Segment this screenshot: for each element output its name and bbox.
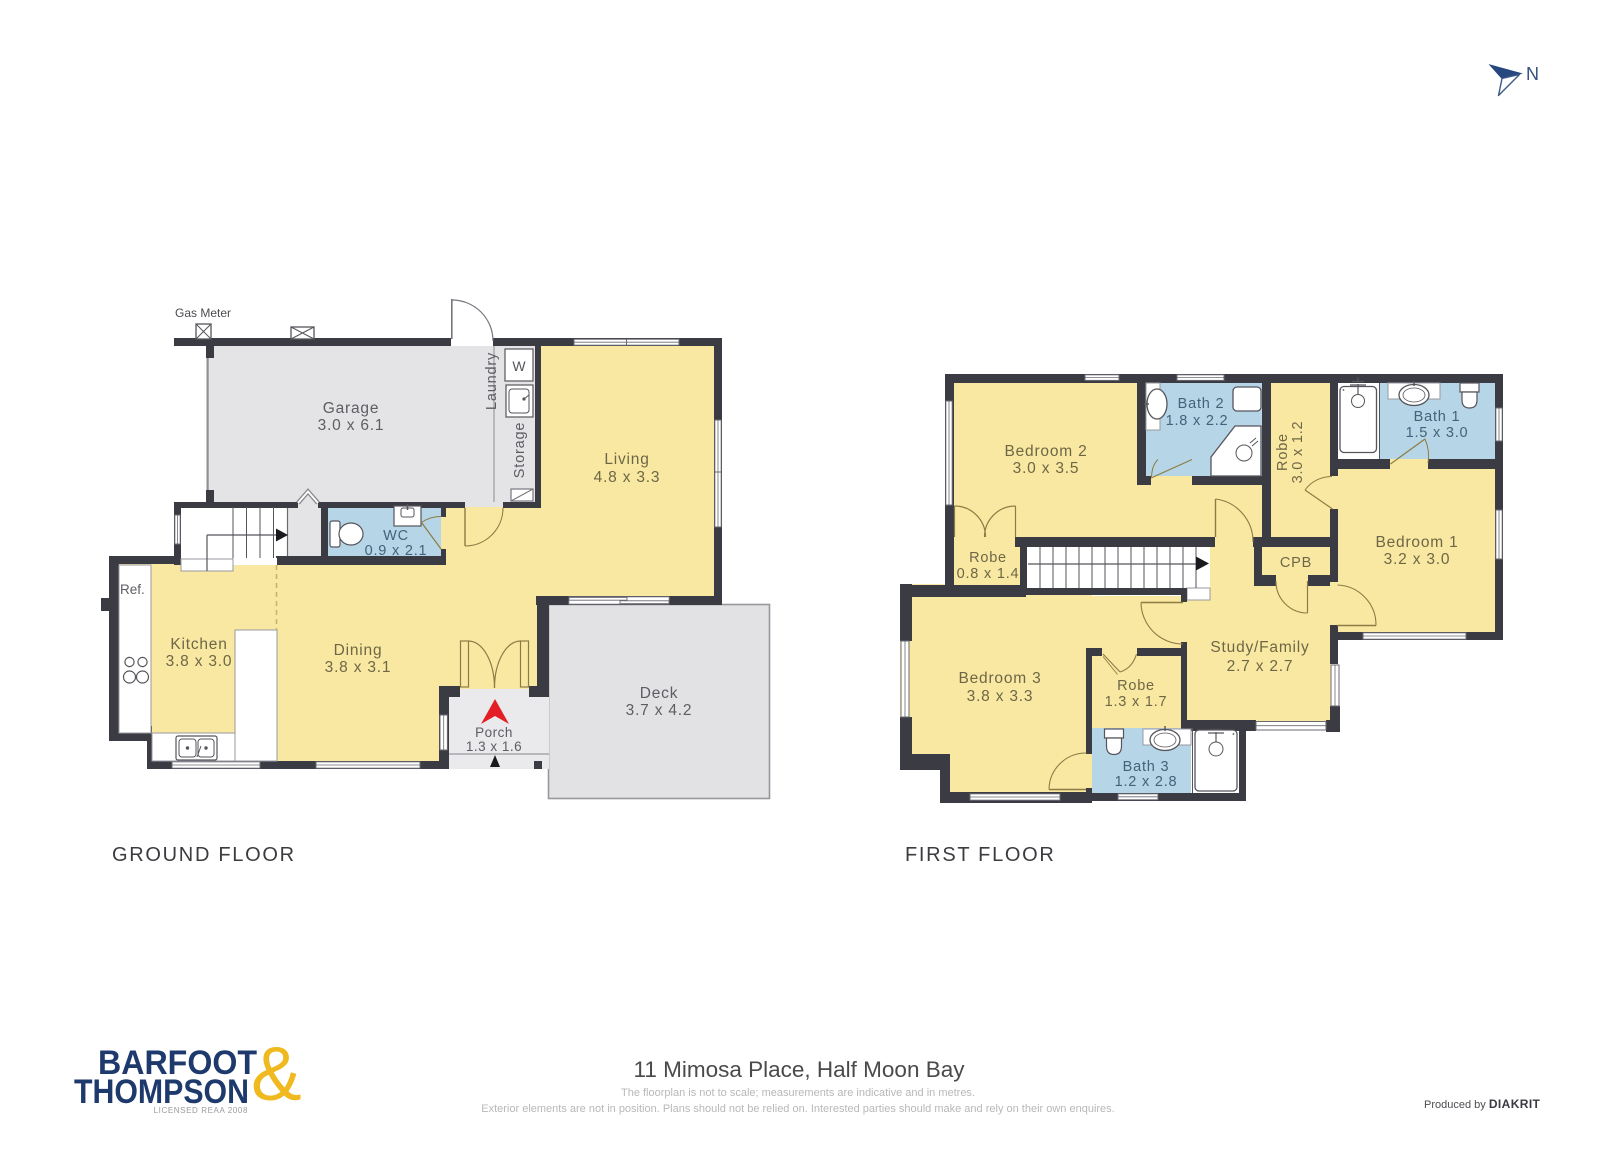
svg-text:1.3 x 1.7: 1.3 x 1.7	[1105, 694, 1168, 710]
svg-text:3.7 x 4.2: 3.7 x 4.2	[626, 702, 693, 719]
svg-text:Porch: Porch	[475, 725, 513, 740]
svg-text:3.8 x 3.0: 3.8 x 3.0	[166, 653, 233, 670]
svg-text:Kitchen: Kitchen	[170, 636, 227, 653]
svg-text:1.5 x 3.0: 1.5 x 3.0	[1406, 425, 1469, 441]
svg-text:3.8 x 3.3: 3.8 x 3.3	[967, 688, 1034, 705]
svg-text:3.0 x 1.2: 3.0 x 1.2	[1290, 421, 1306, 484]
svg-text:Bath 1: Bath 1	[1414, 409, 1461, 425]
svg-text:Robe: Robe	[969, 550, 1007, 566]
svg-text:Robe: Robe	[1275, 433, 1291, 471]
svg-text:11 Mimosa Place, Half Moon Bay: 11 Mimosa Place, Half Moon Bay	[634, 1057, 966, 1082]
svg-text:GROUND FLOOR: GROUND FLOOR	[112, 844, 296, 866]
svg-text:0.9 x 2.1: 0.9 x 2.1	[365, 543, 428, 559]
svg-text:4.8 x 3.3: 4.8 x 3.3	[594, 469, 661, 486]
svg-text:Gas Meter: Gas Meter	[175, 306, 231, 320]
svg-text:3.8 x 3.1: 3.8 x 3.1	[325, 659, 392, 676]
svg-text:Deck: Deck	[640, 685, 679, 702]
svg-text:Bath 2: Bath 2	[1178, 396, 1225, 412]
svg-text:N: N	[1526, 64, 1539, 84]
svg-text:Living: Living	[604, 451, 649, 468]
svg-text:1.8 x 2.2: 1.8 x 2.2	[1166, 413, 1229, 429]
svg-text:CPB: CPB	[1280, 555, 1312, 571]
svg-text:0.8 x 1.4: 0.8 x 1.4	[957, 566, 1020, 582]
svg-text:&: &	[251, 1032, 302, 1117]
svg-text:Produced by DIAKRIT: Produced by DIAKRIT	[1424, 1097, 1541, 1111]
svg-text:LICENSED REAA 2008: LICENSED REAA 2008	[154, 1106, 248, 1115]
svg-text:Exterior elements are not in p: Exterior elements are not in position. P…	[481, 1103, 1114, 1115]
svg-text:Laundry: Laundry	[484, 352, 500, 410]
svg-text:3.0 x 6.1: 3.0 x 6.1	[318, 417, 385, 434]
svg-text:Bedroom 3: Bedroom 3	[958, 670, 1041, 687]
svg-text:Ref.: Ref.	[120, 582, 145, 597]
svg-text:Storage: Storage	[512, 422, 528, 478]
svg-text:Bedroom 1: Bedroom 1	[1375, 534, 1458, 551]
svg-text:Study/Family: Study/Family	[1210, 639, 1309, 656]
svg-text:WC: WC	[383, 528, 409, 544]
svg-text:FIRST FLOOR: FIRST FLOOR	[905, 844, 1056, 866]
svg-text:W: W	[512, 358, 526, 374]
svg-text:3.2 x 3.0: 3.2 x 3.0	[1384, 551, 1451, 568]
svg-text:Bedroom 2: Bedroom 2	[1004, 443, 1087, 460]
svg-text:Garage: Garage	[323, 400, 380, 417]
svg-text:2.7 x 2.7: 2.7 x 2.7	[1227, 658, 1294, 675]
svg-text:Dining: Dining	[334, 642, 383, 659]
svg-text:Bath 3: Bath 3	[1123, 759, 1170, 775]
svg-text:3.0 x 3.5: 3.0 x 3.5	[1013, 460, 1080, 477]
svg-text:The floorplan is not to scale;: The floorplan is not to scale; measureme…	[621, 1087, 975, 1099]
svg-text:1.2 x 2.8: 1.2 x 2.8	[1115, 774, 1178, 790]
svg-text:1.3 x 1.6: 1.3 x 1.6	[466, 739, 522, 754]
svg-text:Robe: Robe	[1117, 678, 1155, 694]
